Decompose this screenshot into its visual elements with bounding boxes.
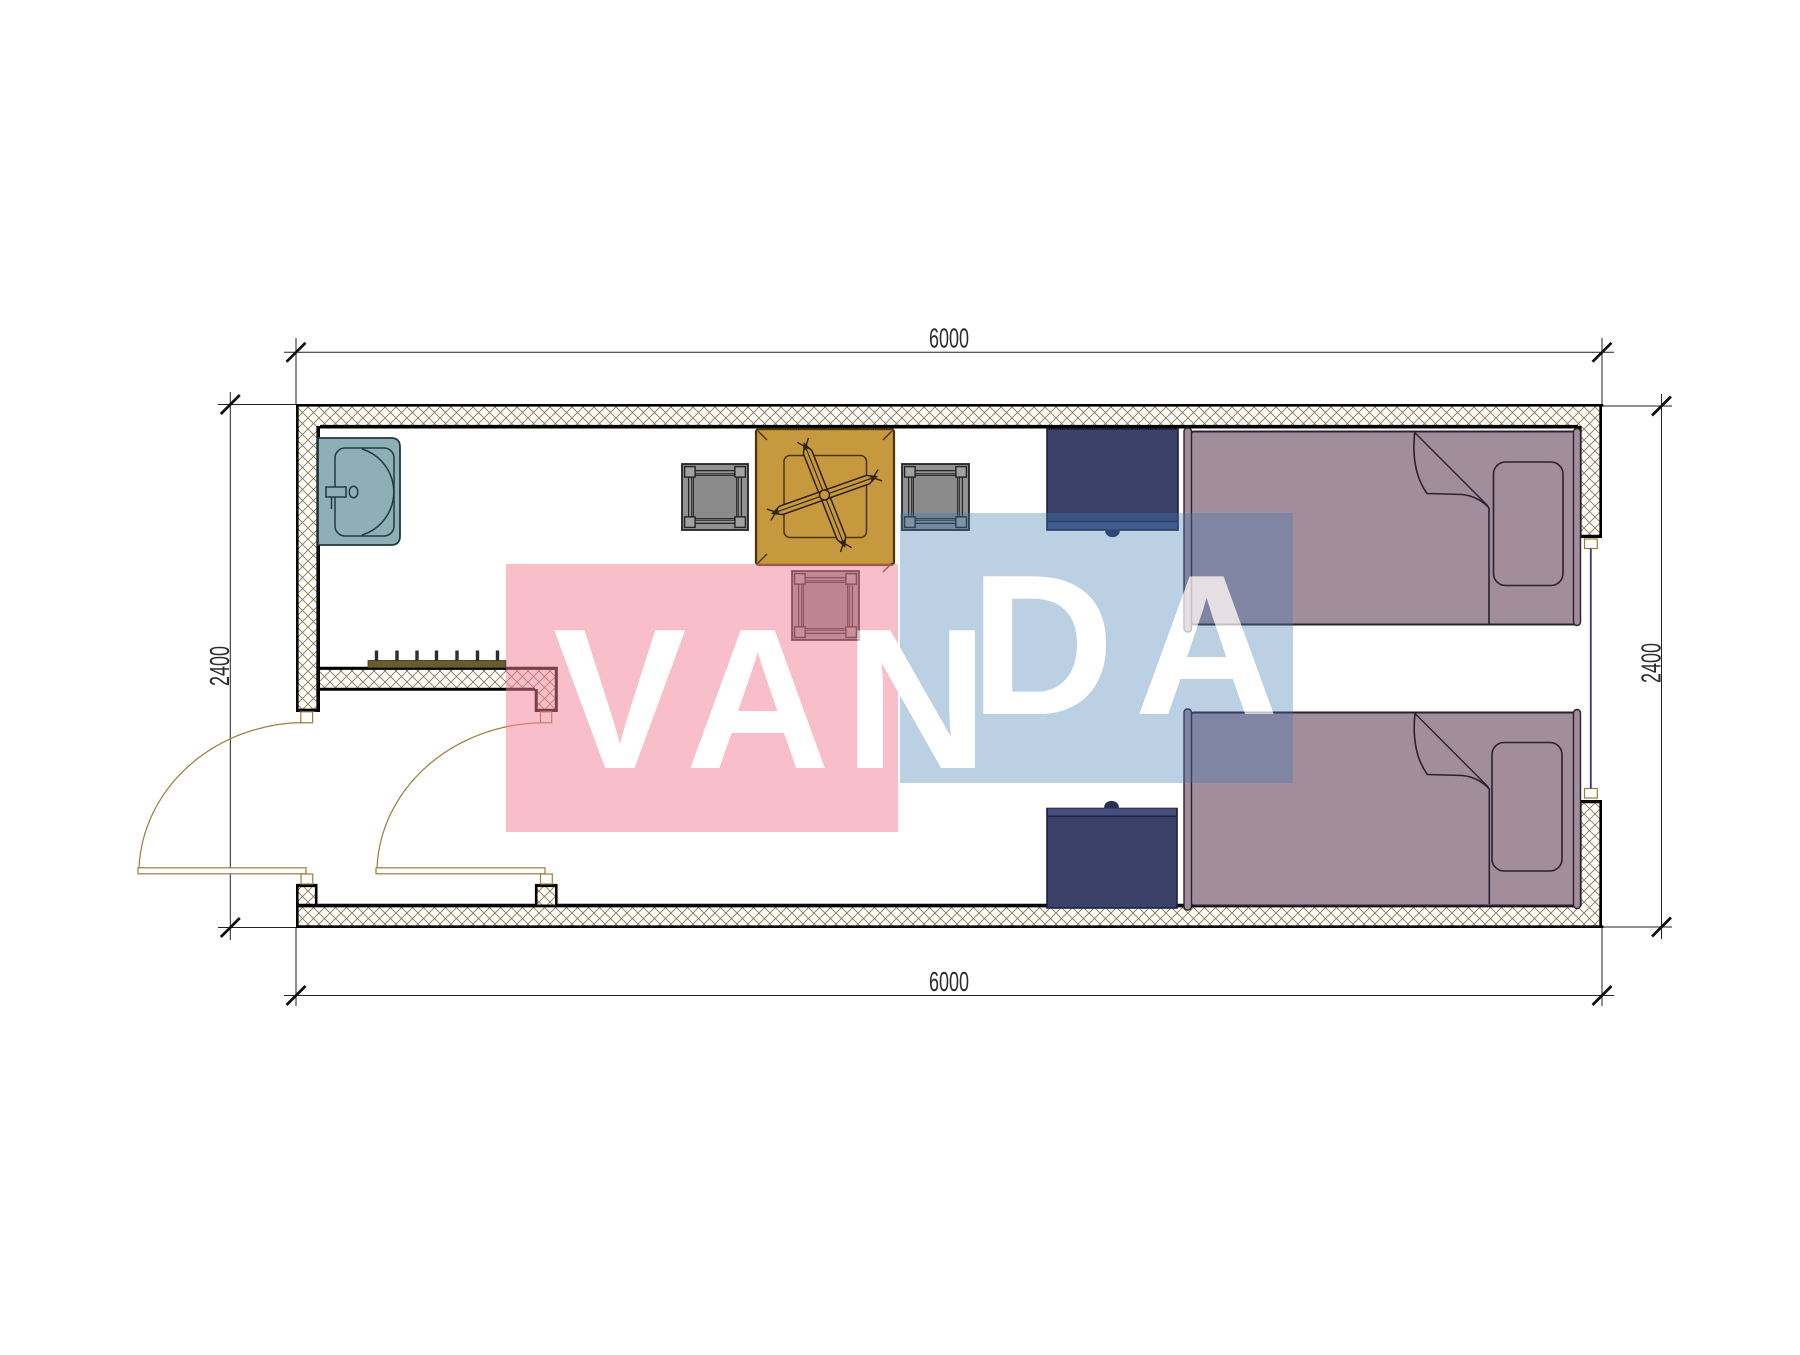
svg-text:2400: 2400: [1636, 643, 1667, 683]
svg-text:6000: 6000: [929, 966, 969, 997]
svg-text:6000: 6000: [929, 323, 969, 354]
svg-text:2400: 2400: [204, 646, 235, 686]
svg-text:VAN: VAN: [553, 588, 1002, 811]
svg-text:DA: DA: [970, 534, 1299, 757]
